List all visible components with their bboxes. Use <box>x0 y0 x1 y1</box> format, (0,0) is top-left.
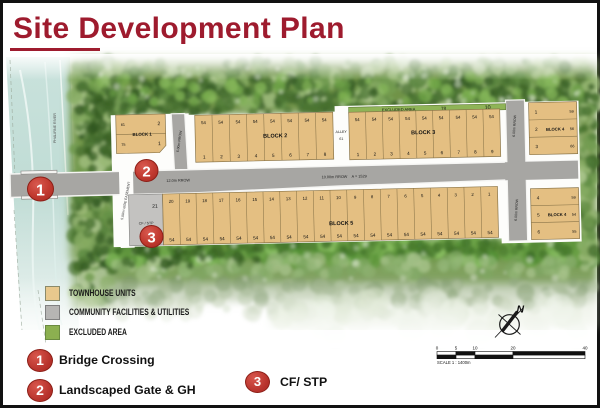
svg-text:54: 54 <box>372 117 378 122</box>
svg-text:66: 66 <box>570 144 574 148</box>
svg-text:54: 54 <box>471 230 477 235</box>
svg-text:ALLEY: ALLEY <box>335 130 347 134</box>
svg-text:54: 54 <box>454 231 460 236</box>
svg-text:21: 21 <box>152 204 158 210</box>
svg-text:54: 54 <box>220 236 226 241</box>
svg-text:12.0m RROW: 12.0m RROW <box>166 178 190 183</box>
svg-text:13: 13 <box>286 196 292 201</box>
svg-text:54: 54 <box>320 234 326 239</box>
svg-text:BLOCK 4: BLOCK 4 <box>546 126 565 131</box>
svg-text:54: 54 <box>439 115 445 120</box>
svg-text:54: 54 <box>236 236 242 241</box>
svg-text:54: 54 <box>203 237 209 242</box>
svg-text:54: 54 <box>201 120 207 125</box>
svg-text:54: 54 <box>337 233 343 238</box>
svg-text:1: 1 <box>36 183 45 200</box>
svg-text:10: 10 <box>336 195 342 200</box>
svg-text:11: 11 <box>319 195 324 200</box>
svg-text:54: 54 <box>270 118 276 123</box>
svg-text:20: 20 <box>169 199 175 204</box>
svg-text:54: 54 <box>422 116 428 121</box>
svg-text:54: 54 <box>487 230 493 235</box>
svg-text:54: 54 <box>355 117 361 122</box>
svg-text:75: 75 <box>121 143 125 147</box>
svg-text:54: 54 <box>489 114 495 119</box>
svg-text:61: 61 <box>339 137 343 141</box>
svg-text:54: 54 <box>253 235 259 240</box>
svg-text:10: 10 <box>472 346 478 351</box>
svg-text:SCALE 1 : 1400m: SCALE 1 : 1400m <box>437 360 471 365</box>
svg-text:16: 16 <box>236 197 242 202</box>
svg-text:19: 19 <box>185 198 191 203</box>
svg-text:N: N <box>517 304 525 316</box>
svg-text:2: 2 <box>157 121 160 127</box>
svg-text:54: 54 <box>387 232 393 237</box>
svg-text:54: 54 <box>420 232 426 237</box>
svg-text:54: 54 <box>405 116 411 121</box>
svg-text:15: 15 <box>252 197 258 202</box>
svg-text:59: 59 <box>569 110 573 114</box>
svg-text:20: 20 <box>510 346 516 351</box>
svg-text:54: 54 <box>305 118 311 123</box>
svg-text:54: 54 <box>388 116 394 121</box>
svg-text:54: 54 <box>455 115 461 120</box>
svg-text:54: 54 <box>437 231 443 236</box>
svg-text:54: 54 <box>572 213 576 217</box>
svg-text:56: 56 <box>570 127 574 131</box>
svg-text:54: 54 <box>353 233 359 238</box>
svg-text:PHALIRNE RIVER: PHALIRNE RIVER <box>53 113 57 143</box>
svg-text:3: 3 <box>147 230 155 247</box>
svg-text:54: 54 <box>370 233 376 238</box>
svg-text:18: 18 <box>202 198 208 203</box>
svg-text:12: 12 <box>303 196 309 201</box>
svg-text:59: 59 <box>571 196 575 200</box>
svg-text:40: 40 <box>582 346 588 351</box>
svg-text:CF / STP: CF / STP <box>139 221 154 225</box>
svg-text:54: 54 <box>303 234 309 239</box>
svg-text:54: 54 <box>472 114 478 119</box>
svg-text:61: 61 <box>121 123 125 127</box>
svg-text:BLOCK 5: BLOCK 5 <box>329 221 353 228</box>
svg-text:BLOCK 2: BLOCK 2 <box>263 133 287 140</box>
svg-text:BLOCK 4: BLOCK 4 <box>548 212 567 217</box>
svg-text:54: 54 <box>253 119 259 124</box>
svg-text:BLOCK 3: BLOCK 3 <box>411 130 435 137</box>
svg-text:54: 54 <box>169 237 175 242</box>
svg-text:54: 54 <box>218 120 224 125</box>
svg-text:17: 17 <box>219 198 225 203</box>
svg-text:54: 54 <box>286 235 292 240</box>
svg-text:2: 2 <box>142 164 150 181</box>
svg-text:54: 54 <box>287 118 293 123</box>
svg-text:BLOCK 1: BLOCK 1 <box>132 132 152 137</box>
svg-text:54: 54 <box>186 237 192 242</box>
svg-text:55: 55 <box>572 230 576 234</box>
svg-text:54: 54 <box>322 117 328 122</box>
svg-text:54: 54 <box>236 119 242 124</box>
svg-text:54: 54 <box>404 232 410 237</box>
svg-text:14: 14 <box>269 196 275 201</box>
svg-text:54: 54 <box>270 235 276 240</box>
svg-text:1: 1 <box>158 141 161 147</box>
